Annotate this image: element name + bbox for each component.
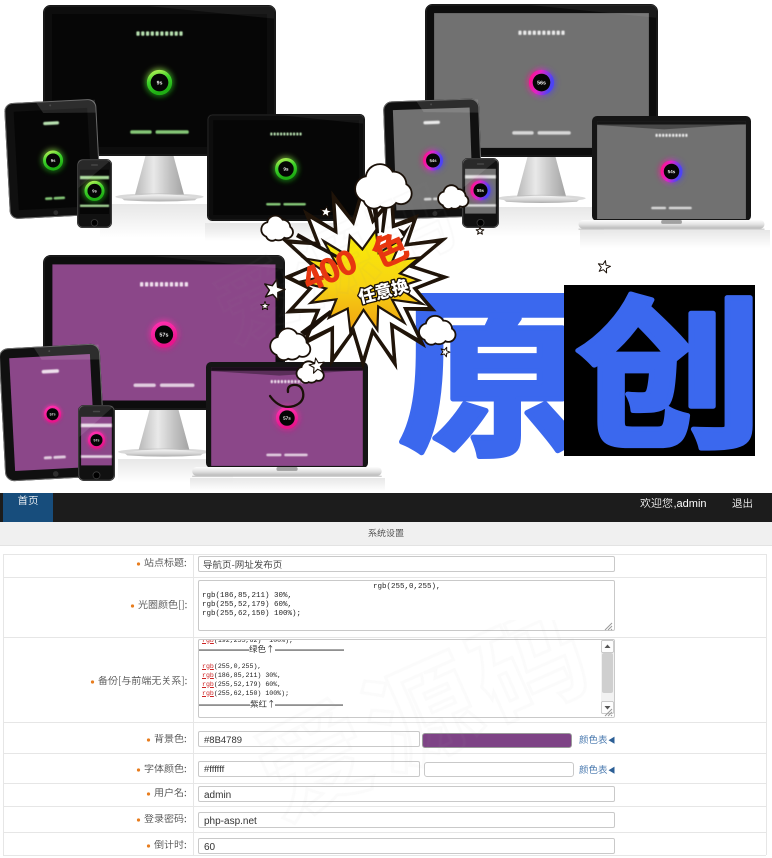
svg-text:,admin: ,admin	[674, 498, 707, 510]
